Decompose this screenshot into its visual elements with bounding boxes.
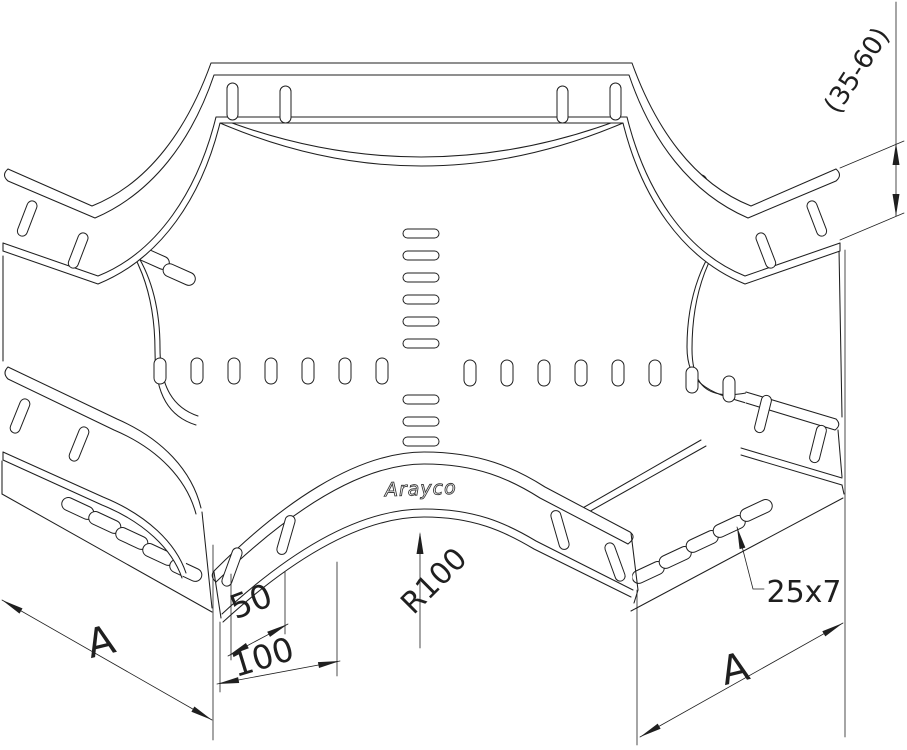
dim-radius: R100 bbox=[394, 532, 474, 648]
dim-width-right: A bbox=[637, 590, 843, 745]
dim-slot-size-label: 25x7 bbox=[766, 575, 841, 610]
dim-radius-label: R100 bbox=[394, 541, 474, 621]
cable-tray-cross-drawing: Arayco (35-60) 25x7 bbox=[0, 0, 907, 750]
east-front-rail bbox=[741, 392, 844, 494]
dim-pitch-large-label: 100 bbox=[227, 629, 299, 685]
southeast-floor-slot-row bbox=[630, 497, 774, 585]
west-front-rail bbox=[3, 367, 212, 608]
dim-width-left-label: A bbox=[82, 617, 120, 668]
brand-logo-text: Arayco bbox=[383, 477, 458, 502]
dim-width-right-label: A bbox=[716, 644, 754, 695]
dim-slot-size: 25x7 bbox=[737, 250, 845, 737]
center-slot-row bbox=[154, 358, 735, 402]
dim-height-range-label: (35-60) bbox=[819, 22, 896, 119]
center-slot-column bbox=[403, 229, 439, 446]
technical-drawing-page: Arayco (35-60) 25x7 bbox=[0, 0, 907, 750]
